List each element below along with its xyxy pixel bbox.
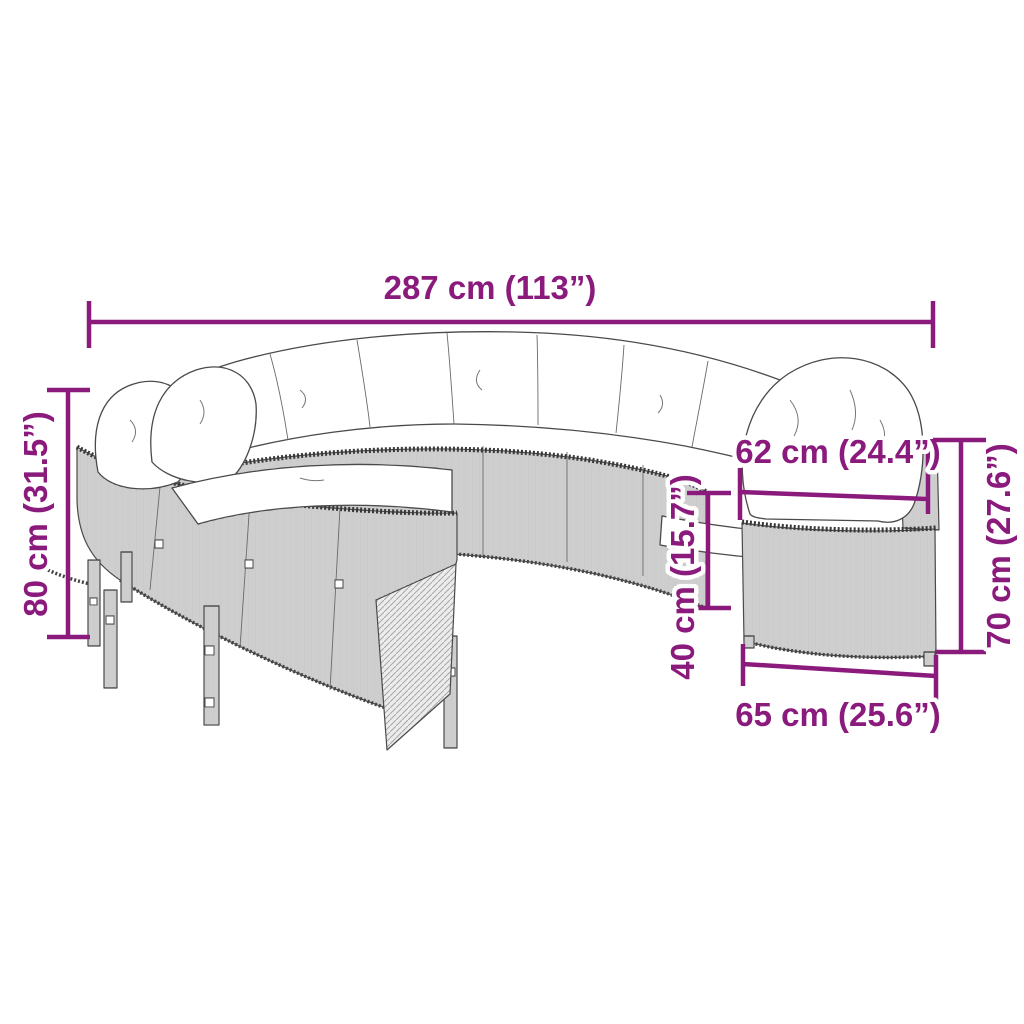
- bench-foot: [924, 652, 935, 666]
- dimension-label-seat-height: 40 cm (15.7”): [664, 474, 701, 679]
- dimension-label-seat-width: 62 cm (24.4”): [735, 433, 940, 470]
- dimension-side-height: 70 cm (27.6”): [933, 440, 1017, 652]
- dimension-label-side-height: 70 cm (27.6”): [980, 443, 1017, 648]
- dimension-label-side-depth: 65 cm (25.6”): [735, 696, 940, 733]
- bench-front: [742, 523, 936, 657]
- dimension-line: [933, 440, 986, 652]
- sofa-drawing: [48, 332, 939, 750]
- dimension-seat-height: 40 cm (15.7”): [664, 474, 731, 679]
- bench-foot: [744, 636, 754, 648]
- dimension-label-overall-width: 287 cm (113”): [384, 269, 597, 306]
- dimension-diagram: 287 cm (113”) 80 cm (31.5”) 62 cm (24.4”…: [0, 0, 1024, 1024]
- diagram-svg: 287 cm (113”) 80 cm (31.5”) 62 cm (24.4”…: [0, 0, 1024, 1024]
- dimension-label-overall-height: 80 cm (31.5”): [17, 411, 54, 616]
